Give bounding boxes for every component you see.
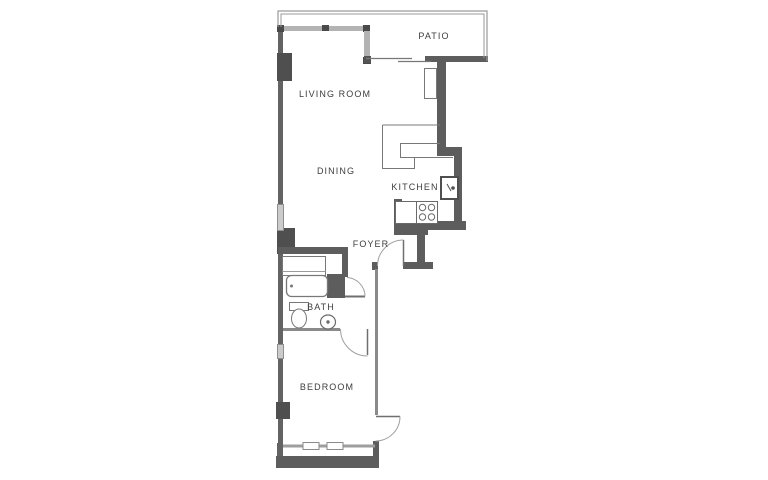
- patio-railing-outer: [278, 11, 487, 61]
- tub-drain-icon: [290, 285, 293, 288]
- room-label-living-room: LIVING ROOM: [299, 89, 371, 99]
- toilet-bowl-icon: [292, 309, 307, 328]
- room-label-bath: BATH: [307, 302, 335, 312]
- sink-drain-icon: [451, 186, 455, 190]
- bedroom-door-arc: [376, 417, 401, 442]
- room-label-dining: DINING: [317, 166, 355, 176]
- bedroom-rear-window-2: [327, 443, 343, 450]
- floor-plan-canvas: PATIO LIVING ROOM DINING KITCHEN FOYER B…: [0, 0, 768, 480]
- bedroom-rear-window-1: [303, 443, 319, 450]
- burner: [419, 204, 425, 210]
- room-label-bedroom: BEDROOM: [300, 382, 354, 392]
- room-label-patio: PATIO: [418, 31, 449, 41]
- bath-sink-drain-icon: [326, 320, 329, 323]
- hall-door-arc: [341, 329, 368, 356]
- room-label-foyer: FOYER: [353, 239, 390, 249]
- patio-railing-inner: [281, 14, 484, 58]
- closet: [283, 257, 326, 276]
- kitchen-counter-outline: [383, 125, 454, 169]
- stove-icon: [417, 202, 438, 224]
- room-label-kitchen: KITCHEN: [391, 182, 438, 192]
- burner: [428, 204, 434, 210]
- bath-door-arc: [347, 278, 365, 297]
- utility-shaft: [425, 69, 437, 99]
- base-cabinet: [396, 202, 417, 224]
- burner: [419, 214, 425, 220]
- burner: [428, 214, 434, 220]
